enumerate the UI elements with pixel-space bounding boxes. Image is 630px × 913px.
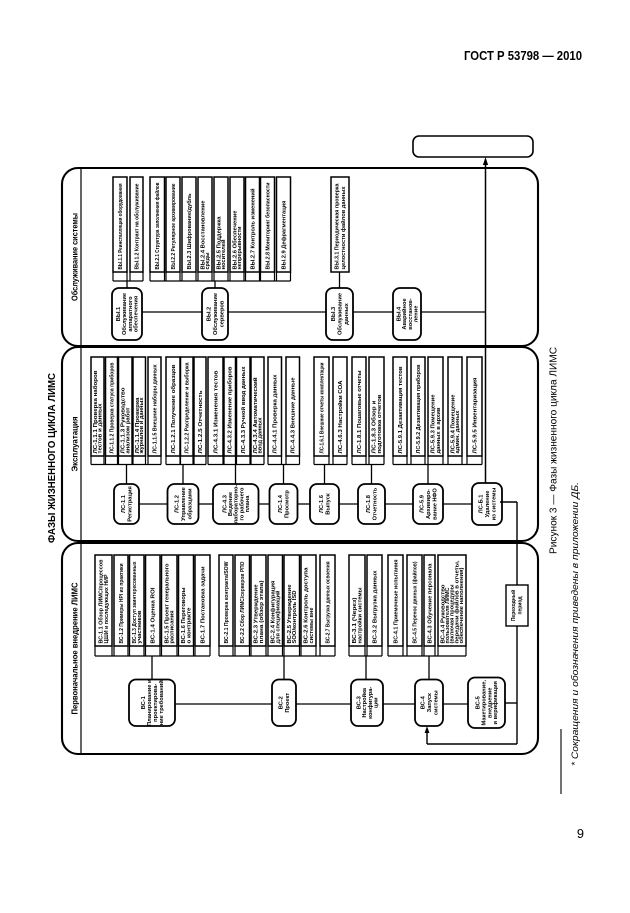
svg-text:ВЫ.2.1 Структура заполнения фа: ВЫ.2.1 Структура заполнения файлов <box>154 183 161 270</box>
svg-text:ЛС-5.9.2 Дезактивация приборов: ЛС-5.9.2 Дезактивация приборов <box>415 365 422 454</box>
svg-text:ВЫ.2.7 Контроль изменений: ВЫ.2.7 Контроль изменений <box>249 189 256 270</box>
svg-text:Первоначальное внедрение ЛИМС: Первоначальное внедрение ЛИМС <box>71 582 80 714</box>
svg-text:обеспечение наполнения): обеспечение наполнения) <box>458 567 465 643</box>
svg-text:ВС-1.4 Оценка ROI: ВС-1.4 Оценка ROI <box>151 587 157 644</box>
svg-text:ЛС-1.6.1 Внешние отчеты компле: ЛС-1.6.1 Внешние отчеты комплектации <box>319 363 325 454</box>
svg-text:данных в архив: данных в архив <box>436 408 442 454</box>
svg-text:Переходный: Переходный <box>510 590 517 621</box>
svg-text:ФАЗЫ ЖИЗНЕННОГО ЦИКЛА ЛИМС: ФАЗЫ ЖИЗНЕННОГО ЦИКЛА ЛИМС <box>46 373 58 543</box>
svg-text:расписания: расписания <box>170 610 176 643</box>
svg-text:ВЫ.1.2 Контракт на обслуживани: ВЫ.1.2 Контракт на обслуживание <box>133 183 140 269</box>
svg-text:носителей: носителей <box>220 240 227 270</box>
svg-text:ЛС-4.3.3 Ручной ввод данных: ЛС-4.3.3 Ручной ввод данных <box>240 366 247 453</box>
svg-text:среды: среды <box>205 253 211 270</box>
svg-text:Эксплуатация: Эксплуатация <box>71 416 80 471</box>
svg-text:журналов и данных: журналов и данных <box>139 397 145 454</box>
svg-text:ЛС-5.9.1 Дезактивация тестов: ЛС-5.9.1 Дезактивация тестов <box>398 367 404 454</box>
svg-text:ВС-4.1 Приемочные испытания: ВС-4.1 Приемочные испытания <box>393 559 399 643</box>
svg-text:ЛС-4.4.1 Проверка данных: ЛС-4.4.1 Проверка данных <box>273 374 279 453</box>
svg-text:ЛС-4.3.1 Изменения тестов: ЛС-4.3.1 Изменения тестов <box>213 371 219 454</box>
svg-text:настройки системы: настройки системы <box>356 588 363 644</box>
svg-text:участников: участников <box>137 611 143 644</box>
svg-text:ЛС-1.8.1 Пошаговые отчеты: ЛС-1.8.1 Пошаговые отчеты <box>357 371 363 454</box>
svg-text:тестов и данных: тестов и данных <box>97 403 103 453</box>
svg-text:ЛС-1.2.5 Отчетность: ЛС-1.2.5 Отчетность <box>198 391 204 454</box>
svg-text:ВС-4.3 Обучение персонала: ВС-4.3 Обучение персонала <box>426 563 433 643</box>
svg-text:ЛС-1.1.2 Проверка статуса приб: ЛС-1.1.2 Проверка статуса приборов <box>108 363 115 454</box>
svg-text:системы вне: системы вне <box>309 607 315 643</box>
svg-text:анализом работ: анализом работ <box>124 407 131 454</box>
svg-text:плана (обзор этапа): плана (обзор этапа) <box>258 580 265 643</box>
svg-text:ЛС-4.3.2 Изменение приборов: ЛС-4.3.2 Изменение приборов <box>227 367 234 454</box>
svg-text:ЛС-4.4.3 Внешние данные: ЛС-4.4.3 Внешние данные <box>291 377 297 453</box>
svg-text:ВС-2.7 Выгрузка данных освоени: ВС-2.7 Выгрузка данных освоения <box>325 561 331 643</box>
svg-text:Обслуживание системы: Обслуживание системы <box>71 213 80 301</box>
svg-text:ввод данных: ввод данных <box>257 417 263 453</box>
svg-text:ВС-3.2 Выгрузка данных: ВС-3.2 Выгрузка данных <box>372 570 378 643</box>
svg-text:ВС-1.2 Примеры НРI из практики: ВС-1.2 Примеры НРI из практики <box>119 564 125 644</box>
svg-text:ЦШИ и последующих НИР: ЦШИ и последующих НИР <box>104 574 110 644</box>
svg-text:для спецификаций: для спецификаций <box>274 591 281 644</box>
svg-text:ВЫ.2.8 Мониторинг безопасности: ВЫ.2.8 Мониторинг безопасности <box>264 183 271 270</box>
svg-text:SOO/контроль ISD: SOO/контроль ISD <box>292 590 298 643</box>
svg-text:* Сокращения и обозначения при: * Сокращения и обозначения приведены в п… <box>570 482 580 766</box>
svg-text:ВЫ.2.2 Регулярное архивировани: ВЫ.2.2 Регулярное архивирование <box>171 183 177 269</box>
svg-text:ВС-2.2 Сбор ЛИМС/серверов РПО: ВС-2.2 Сбор ЛИМС/серверов РПО <box>239 561 246 643</box>
svg-text:ЛС-1.1.5 Внешние наборы данных: ЛС-1.1.5 Внешние наборы данных <box>151 364 158 453</box>
svg-text:ВЫ.3.1 Периодическая проверка: ВЫ.3.1 Периодическая проверка <box>335 183 341 269</box>
svg-text:ЛС-1.2.1 Получение образцов: ЛС-1.2.1 Получение образцов <box>170 365 177 454</box>
svg-text:ВС-1.7 Постановка задачи: ВС-1.7 Постановка задачи <box>200 567 206 644</box>
svg-text:ВС-2.1 Проверка контракта/SOW: ВС-2.1 Проверка контракта/SOW <box>224 561 230 643</box>
svg-text:ВЫ.1.1 Реинсталляция оборудова: ВЫ.1.1 Реинсталляция оборудования <box>117 183 124 269</box>
svg-text:админ. данных: админ. данных <box>455 410 461 453</box>
svg-text:ГОСТ Р 53798 — 2010: ГОСТ Р 53798 — 2010 <box>464 49 582 63</box>
svg-text:9: 9 <box>577 826 584 841</box>
svg-text:о контракте: о контракте <box>186 607 192 643</box>
svg-text:Рисунок 3 — Фазы жизненного ци: Рисунок 3 — Фазы жизненного цикла ЛИМС <box>549 347 560 554</box>
svg-text:непрерывности: непрерывности <box>237 227 243 270</box>
svg-text:ЛС-1.6Выпуск: ЛС-1.6Выпуск <box>319 493 331 515</box>
svg-text:ЛС-4.6.3 Настройки СОА: ЛС-4.6.3 Настройки СОА <box>337 380 344 453</box>
svg-text:ВС-4.5 Перенос данных (файлов): ВС-4.5 Перенос данных (файлов) <box>411 561 418 643</box>
svg-text:подготовка отчетов: подготовка отчетов <box>377 395 383 454</box>
svg-text:целостности файлов данных: целостности файлов данных <box>340 186 347 269</box>
svg-text:ЛС-1.2.2 Распределение и выбор: ЛС-1.2.2 Распределение и выборка <box>184 362 191 453</box>
svg-text:период: период <box>518 596 524 615</box>
svg-text:ВЫ.2.9 Дефрагментация: ВЫ.2.9 Дефрагментация <box>280 200 287 269</box>
svg-text:ЛС-5.9.5 Инвентаризация: ЛС-5.9.5 Инвентаризация <box>472 377 478 453</box>
svg-text:ВЫ.2.3 Шифрование/дубль: ВЫ.2.3 Шифрование/дубль <box>186 194 193 270</box>
